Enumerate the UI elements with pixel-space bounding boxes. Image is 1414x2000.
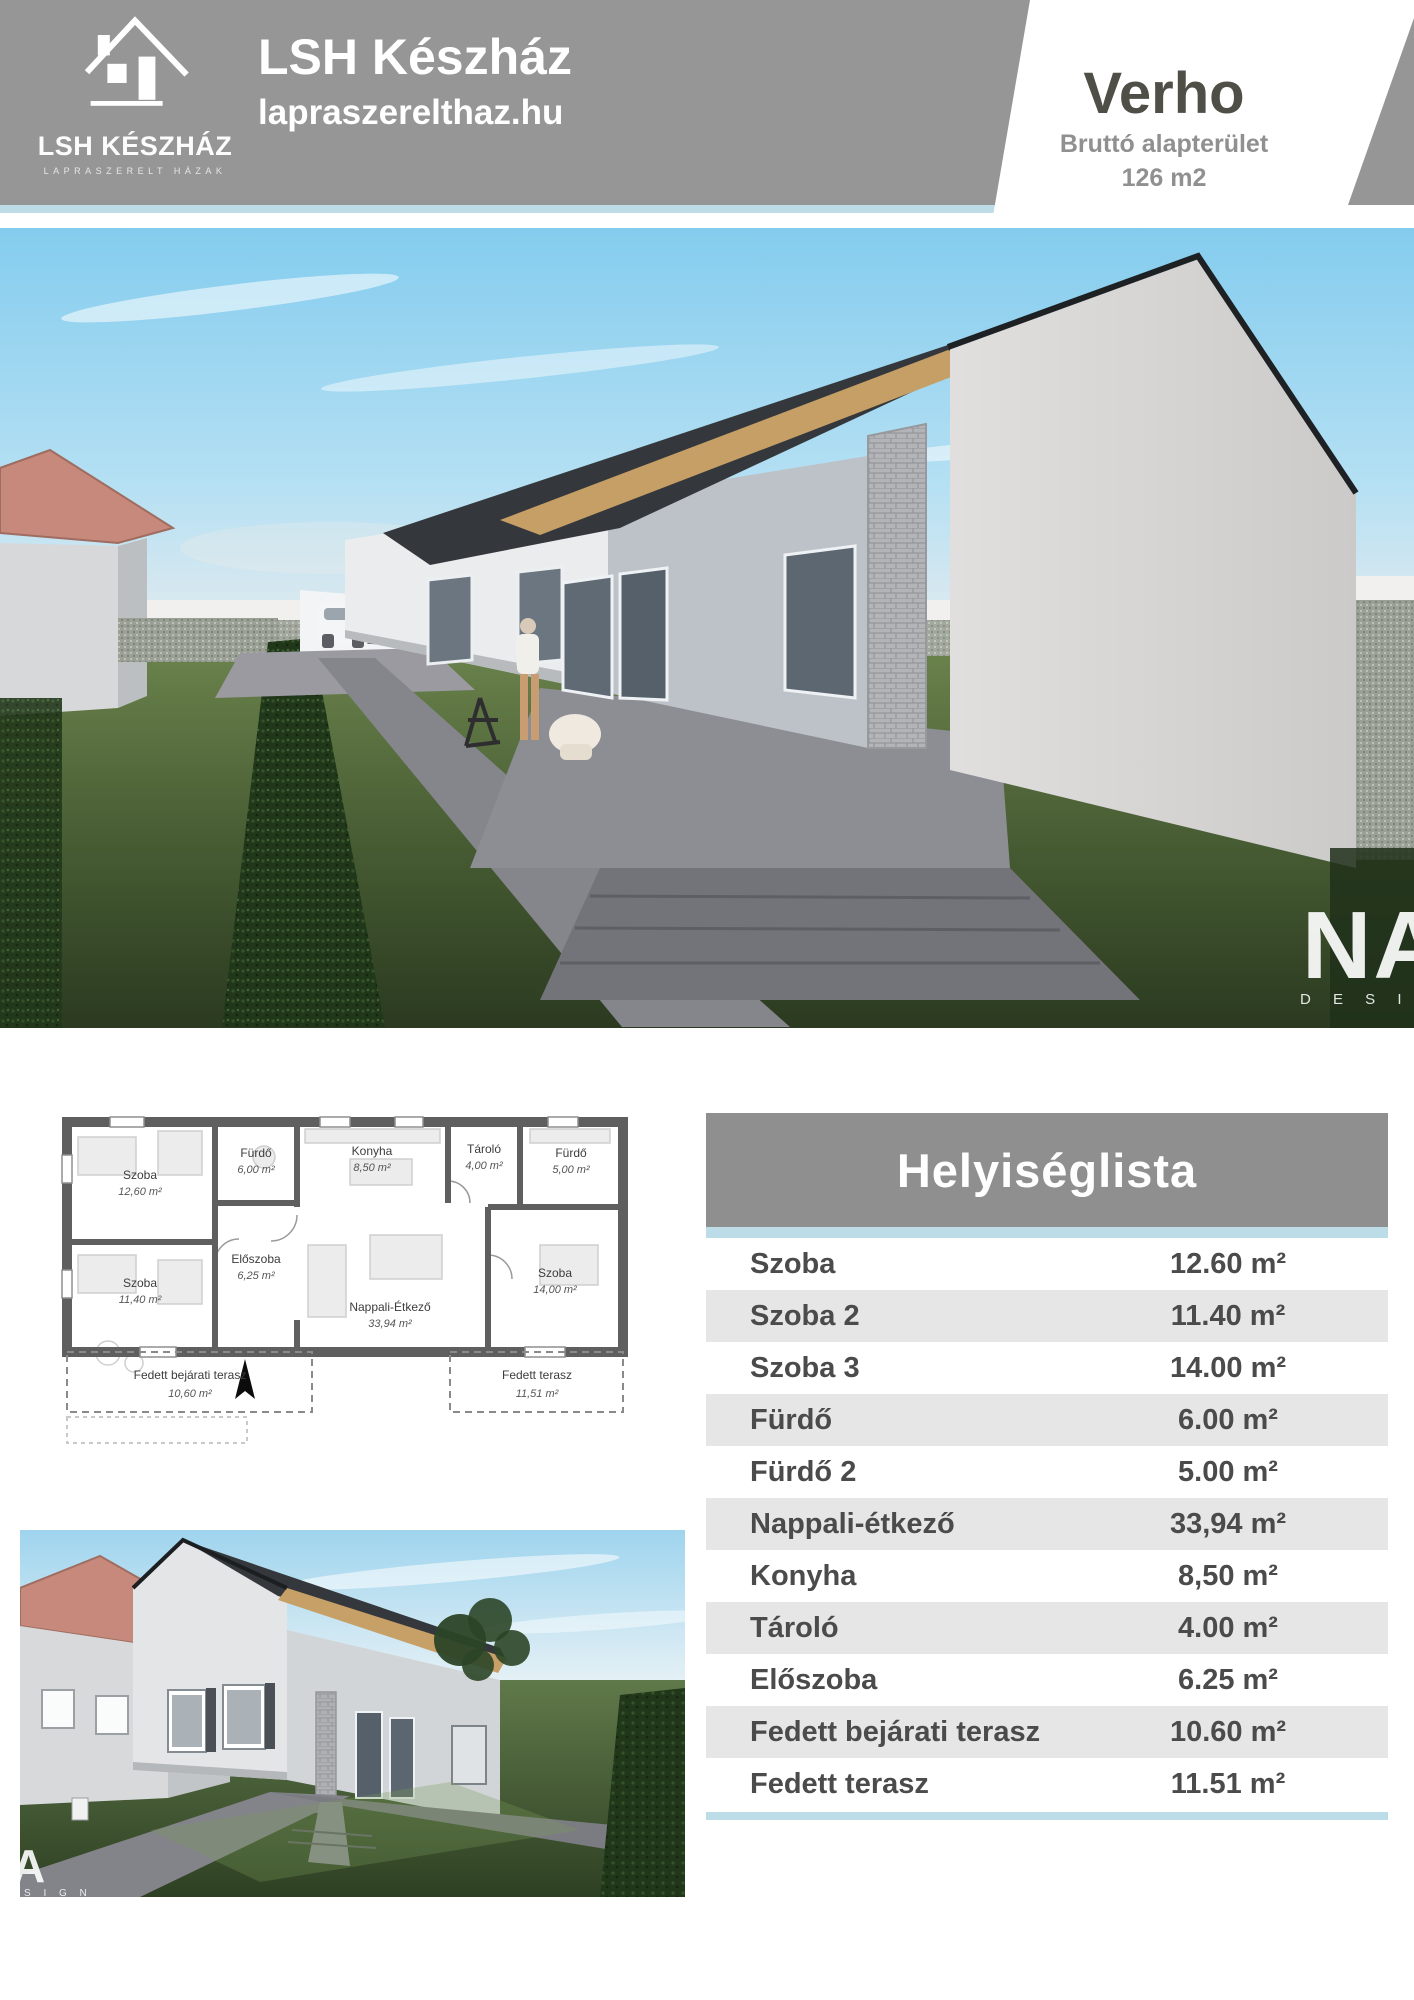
- model-badge: Verho Bruttó alapterület 126 m2: [984, 0, 1414, 216]
- room-area: 33,94 m²: [1078, 1508, 1388, 1541]
- secondary-house-render: A S I G N: [20, 1530, 685, 1897]
- neighbor-wall: [0, 543, 118, 716]
- room-label: Nappali-Étkező: [349, 1299, 431, 1314]
- table-row: Szoba 3 14.00 m²: [706, 1342, 1388, 1394]
- room-area: 10.60 m²: [1078, 1716, 1388, 1749]
- room-area: 12.60 m²: [1078, 1248, 1388, 1281]
- company-logo: LSH KÉSZHÁZ LAPRASZERELT HÁZAK: [30, 6, 240, 202]
- room-label: Szoba: [123, 1168, 157, 1182]
- table-rows: Szoba 12.60 m² Szoba 2 11.40 m² Szoba 3 …: [706, 1238, 1388, 1810]
- model-name: Verho: [1083, 61, 1244, 126]
- room-area: 33,94 m²: [368, 1318, 412, 1330]
- room-area: 6.00 m²: [1078, 1404, 1388, 1437]
- room-name: Fürdő: [706, 1404, 1078, 1437]
- room-area: 10,60 m²: [168, 1388, 212, 1400]
- table-accent-line-top: [706, 1227, 1388, 1238]
- room-area: 5.00 m²: [1078, 1456, 1388, 1489]
- table-title-bar: Helyiséglista: [706, 1113, 1388, 1227]
- room-name: Konyha: [706, 1560, 1078, 1593]
- ac-unit: [72, 1798, 88, 1820]
- table-row: Fedett terasz 11.51 m²: [706, 1758, 1388, 1810]
- logo-tagline-text: LAPRASZERELT HÁZAK: [30, 166, 240, 176]
- room-area: 11.40 m²: [1078, 1300, 1388, 1333]
- gross-area-value: 126 m2: [1122, 164, 1207, 192]
- right-mesh-fence: [1356, 600, 1414, 860]
- table-row: Fürdő 6.00 m²: [706, 1394, 1388, 1446]
- room-name: Fedett bejárati terasz: [706, 1716, 1078, 1749]
- room-name: Szoba 3: [706, 1352, 1078, 1385]
- room-area: 8,50 m²: [1078, 1560, 1388, 1593]
- designer-watermark: NA D E S I G N: [1300, 892, 1414, 1008]
- website-url: lapraszerelthaz.hu: [258, 93, 572, 133]
- room-area: 5,00 m²: [552, 1164, 590, 1176]
- house-icon: [75, 6, 195, 130]
- table-row: Konyha 8,50 m²: [706, 1550, 1388, 1602]
- room-area: 6,25 m²: [237, 1270, 275, 1282]
- table-row: Fürdő 2 5.00 m²: [706, 1446, 1388, 1498]
- table-title: Helyiséglista: [897, 1143, 1197, 1198]
- watermark-monogram: NA: [1302, 892, 1414, 999]
- room-area: 11,51 m²: [516, 1388, 559, 1400]
- room-area: 14,00 m²: [533, 1284, 577, 1296]
- room-area: 14.00 m²: [1078, 1352, 1388, 1385]
- room-name: Nappali-étkező: [706, 1508, 1078, 1541]
- header-title-block: LSH Készház lapraszerelthaz.hu: [258, 30, 572, 133]
- room-name: Szoba: [706, 1248, 1078, 1281]
- room-label: Tároló: [467, 1142, 501, 1156]
- watermark-text: D E S I G N: [1300, 991, 1414, 1008]
- room-name: Fürdő 2: [706, 1456, 1078, 1489]
- person-figure: [517, 618, 539, 740]
- room-name: Előszoba: [706, 1664, 1078, 1697]
- room-label: Előszoba: [231, 1252, 281, 1266]
- corner-fence-texture: [0, 698, 62, 1028]
- room-list-table: Helyiséglista Szoba 12.60 m² Szoba 2 11.…: [706, 1113, 1388, 1820]
- room-name: Szoba 2: [706, 1300, 1078, 1333]
- room-area: 6.25 m²: [1078, 1664, 1388, 1697]
- table-row: Szoba 12.60 m²: [706, 1238, 1388, 1290]
- room-label: Fürdő: [555, 1146, 587, 1160]
- room-label: Szoba: [538, 1266, 572, 1280]
- brick-pillar: [868, 424, 926, 748]
- room-area: 6,00 m²: [237, 1164, 275, 1176]
- room-area: 4.00 m²: [1078, 1612, 1388, 1645]
- main-house-render: NA D E S I G N: [0, 228, 1414, 1028]
- page-title: LSH Készház: [258, 30, 572, 85]
- room-area: 4,00 m²: [465, 1160, 503, 1172]
- table-row: Tároló 4.00 m²: [706, 1602, 1388, 1654]
- room-label: Fürdő: [240, 1146, 272, 1160]
- room-name: Tároló: [706, 1612, 1078, 1645]
- room-label: Szoba: [123, 1276, 157, 1290]
- room-area: 12,60 m²: [118, 1186, 162, 1198]
- watermark-monogram: A: [20, 1840, 45, 1892]
- room-label: Fedett bejárati terasz: [134, 1368, 247, 1382]
- table-accent-line-bottom: [706, 1812, 1388, 1820]
- room-name: Fedett terasz: [706, 1768, 1078, 1801]
- table-row: Fedett bejárati terasz 10.60 m²: [706, 1706, 1388, 1758]
- watermark-text: S I G N: [24, 1888, 92, 1897]
- table-row: Szoba 2 11.40 m²: [706, 1290, 1388, 1342]
- room-area: 8,50 m²: [353, 1162, 391, 1174]
- room-label: Konyha: [352, 1144, 393, 1158]
- room-area: 11,40 m²: [119, 1294, 162, 1306]
- table-row: Nappali-étkező 33,94 m²: [706, 1498, 1388, 1550]
- room-label: Fedett terasz: [502, 1368, 572, 1382]
- logo-brand-text: LSH KÉSZHÁZ: [30, 131, 240, 162]
- floor-plan: Szoba 12,60 m² Fürdő 6,00 m² Konyha 8,50…: [50, 1095, 690, 1455]
- room-area: 11.51 m²: [1078, 1768, 1388, 1801]
- brochure-page: { "header": { "logo": { "icon": "house-i…: [0, 0, 1414, 2000]
- gross-area-label: Bruttó alapterület: [1060, 130, 1269, 158]
- table-row: Előszoba 6.25 m²: [706, 1654, 1388, 1706]
- brick-pillar: [316, 1692, 336, 1812]
